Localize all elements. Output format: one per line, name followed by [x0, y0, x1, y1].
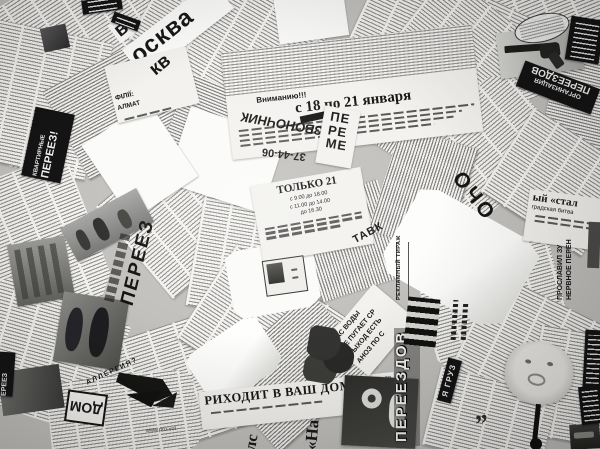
pere-me-text: ПЕРЕ МЕ: [325, 109, 354, 153]
figure-silhouette: [63, 306, 86, 352]
dom-box: ДОМ: [64, 389, 108, 426]
ls-text: лс: [242, 433, 262, 449]
black-ad-strip: [578, 385, 600, 425]
round-logo: [361, 388, 382, 409]
figure-silhouette: [115, 208, 134, 231]
ereez-text: ЕРЕЕЗ: [0, 352, 10, 396]
blank-scrap: [273, 0, 349, 45]
newspaper-collage-photo: осква в КВАРТИРНЫЕ ПЕРЕЕЗ! кв ФІЛІЇ: АЛМ…: [0, 0, 600, 449]
car-photo: [569, 423, 600, 449]
na-quote-word: «На: [302, 419, 322, 449]
revolver-grip: [548, 51, 565, 70]
thermometer-bulb: [530, 438, 542, 449]
figure-silhouette: [74, 228, 93, 252]
black-ad-strip: [582, 330, 600, 389]
framed-mini-ad-photo: [262, 255, 309, 296]
reklamny-text: РЕКЛАМНЫЙ ТИРАЖ: [396, 235, 402, 300]
proslavil-text: ПРОСЛАВИЛ ЗУ: [557, 245, 564, 300]
nervnoe-text: НЕРВНОЕ ПЕРЕН: [566, 239, 573, 300]
almat-text: АЛМАТ: [117, 100, 141, 112]
snout-mark: [527, 372, 547, 387]
black-bars-block: [404, 296, 441, 347]
dom-text: ДОМ: [69, 399, 103, 417]
eye-mark: [547, 362, 554, 367]
figure-silhouette: [86, 306, 112, 358]
ls-word: лс: [243, 433, 262, 449]
eye-mark: [525, 359, 532, 364]
figures-photo: [53, 291, 129, 370]
proslavil-column: ПРОСЛАВИЛ ЗУ НЕРВНОЕ ПЕРЕН: [556, 236, 578, 300]
kv-text: кв: [146, 51, 174, 79]
window-shadows: [14, 242, 68, 299]
gray-strip: [587, 222, 600, 268]
pereezdov-vertical: ПЕРЕЕЗДОВ: [394, 328, 420, 446]
reklamny-column: РЕКЛАМНЫЙ ТИРАЖ: [396, 242, 409, 300]
pere-me-letters: ПЕРЕ МЕ: [325, 109, 352, 154]
black-ad-box: [565, 16, 600, 65]
pereezdov-vertical-text: ПЕРЕЕЗДОВ: [393, 331, 410, 442]
na-quote-text: «На: [301, 419, 323, 449]
figure-silhouette: [90, 216, 112, 243]
